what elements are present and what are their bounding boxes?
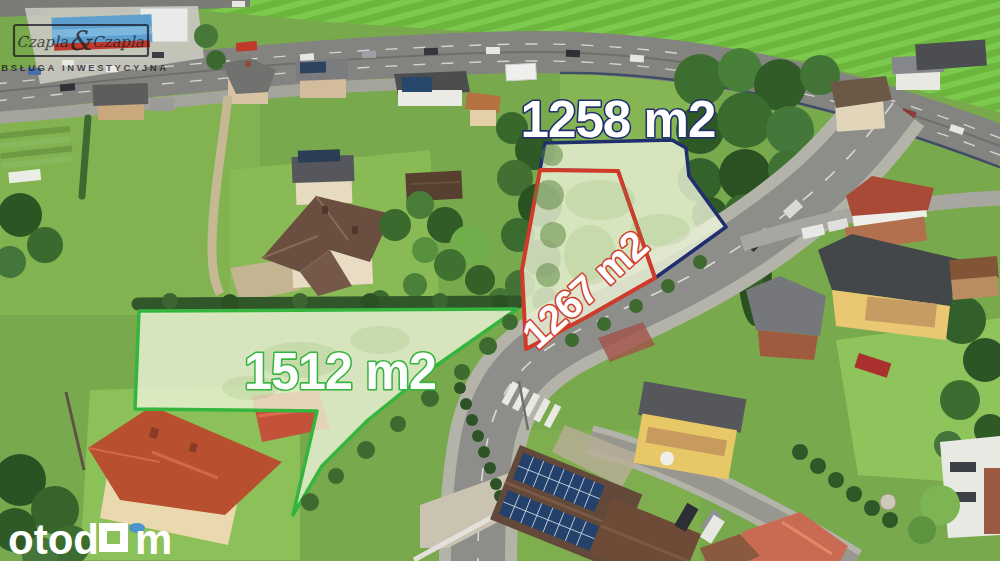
aerial-scene: 1258 m2 1267 m2 1512 m2 Czapla&Czapla OB… (0, 0, 1000, 561)
brand-watermark: otod m (8, 516, 172, 561)
solar-panels (300, 62, 326, 74)
red-truck (236, 41, 258, 52)
agency-watermark: Czapla&Czapla OBSŁUGA INWESTYCYJNA (0, 25, 169, 73)
windows (950, 462, 976, 472)
logo-subtitle: OBSŁUGA INWESTYCYJNA (0, 62, 169, 73)
plot-1512-label: 1512 m2 (244, 342, 436, 400)
house-wall (398, 90, 462, 106)
shed (150, 98, 174, 111)
solar-panels (298, 149, 340, 162)
logo-word: Czapla (92, 33, 144, 51)
logo-word: Czapla (16, 33, 68, 51)
greenhouse (506, 63, 537, 81)
house-wall (951, 276, 999, 300)
house-wall (470, 110, 496, 126)
chimney (322, 206, 328, 214)
house-roof (93, 83, 149, 106)
tree (194, 24, 218, 48)
chimney (245, 61, 251, 67)
car (152, 52, 164, 58)
aerial-photo: 1258 m2 1267 m2 1512 m2 Czapla&Czapla OB… (0, 0, 1000, 561)
house-roof (984, 468, 1000, 534)
chimney (352, 226, 358, 234)
tree (206, 50, 226, 70)
car (232, 1, 245, 7)
solar-panels (402, 77, 432, 92)
tree (908, 516, 936, 544)
brand-suffix: m (135, 516, 172, 561)
flowerbed (880, 494, 896, 510)
logo-ampersand: & (68, 25, 94, 56)
brand-prefix: otod (8, 516, 99, 561)
house-roof (915, 40, 987, 71)
plot-1258-label: 1258 m2 (521, 90, 716, 148)
